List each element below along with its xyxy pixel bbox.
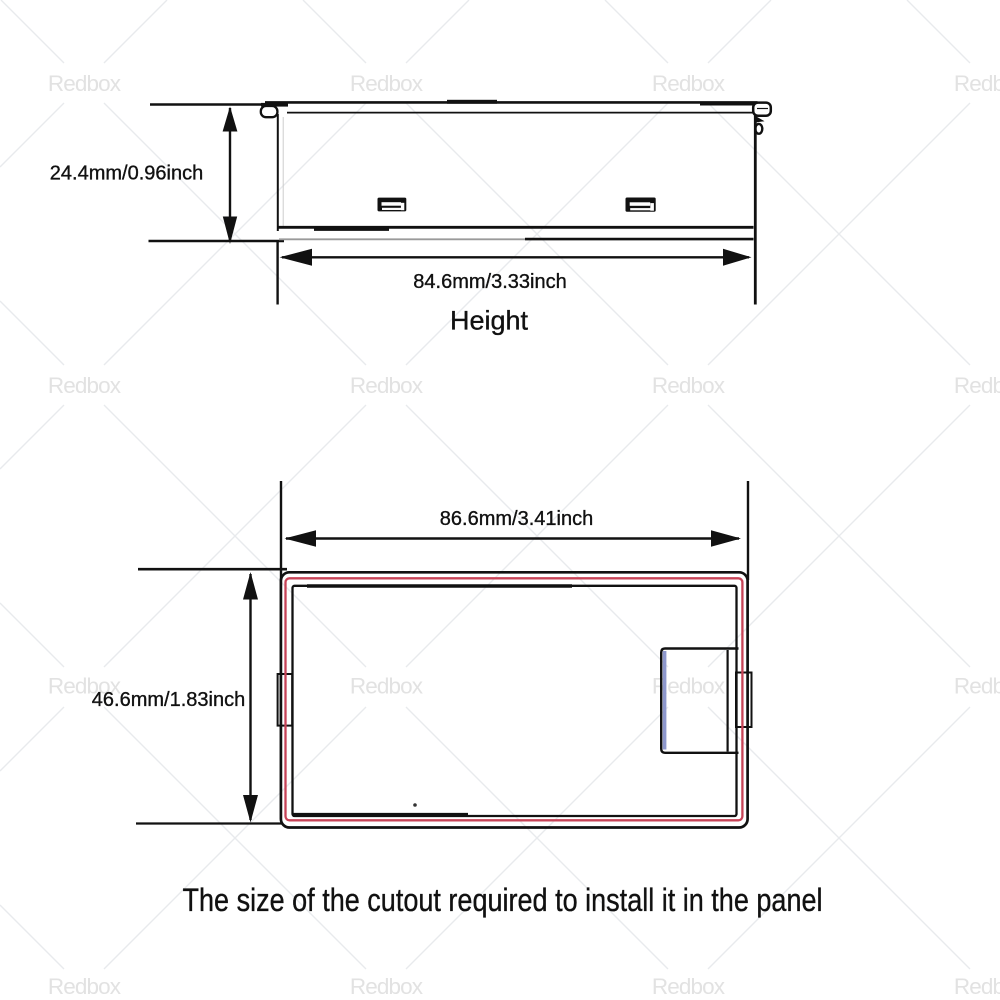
svg-text:Redbox: Redbox [48, 373, 122, 398]
svg-text:Redbox: Redbox [350, 974, 424, 999]
svg-text:Redbox: Redbox [48, 974, 122, 999]
svg-text:86.6mm/3.41inch: 86.6mm/3.41inch [440, 508, 593, 530]
svg-text:Redbox: Redbox [48, 71, 122, 96]
svg-text:Redbox: Redbox [954, 674, 1000, 699]
svg-text:Redbox: Redbox [350, 71, 424, 96]
svg-text:The size of the cutout require: The size of the cutout required to insta… [182, 883, 822, 919]
svg-text:Redbox: Redbox [350, 373, 424, 398]
svg-text:Redbox: Redbox [954, 373, 1000, 398]
svg-text:Redbox: Redbox [652, 71, 726, 96]
svg-text:46.6mm/1.83inch: 46.6mm/1.83inch [92, 689, 245, 711]
svg-text:Redbox: Redbox [954, 71, 1000, 96]
svg-text:Redbox: Redbox [954, 974, 1000, 999]
svg-text:Redbox: Redbox [652, 974, 726, 999]
svg-text:Redbox: Redbox [652, 373, 726, 398]
svg-text:Height: Height [450, 306, 529, 336]
svg-text:24.4mm/0.96inch: 24.4mm/0.96inch [50, 163, 203, 185]
svg-text:Redbox: Redbox [350, 674, 424, 699]
svg-text:84.6mm/3.33inch: 84.6mm/3.33inch [413, 271, 566, 293]
